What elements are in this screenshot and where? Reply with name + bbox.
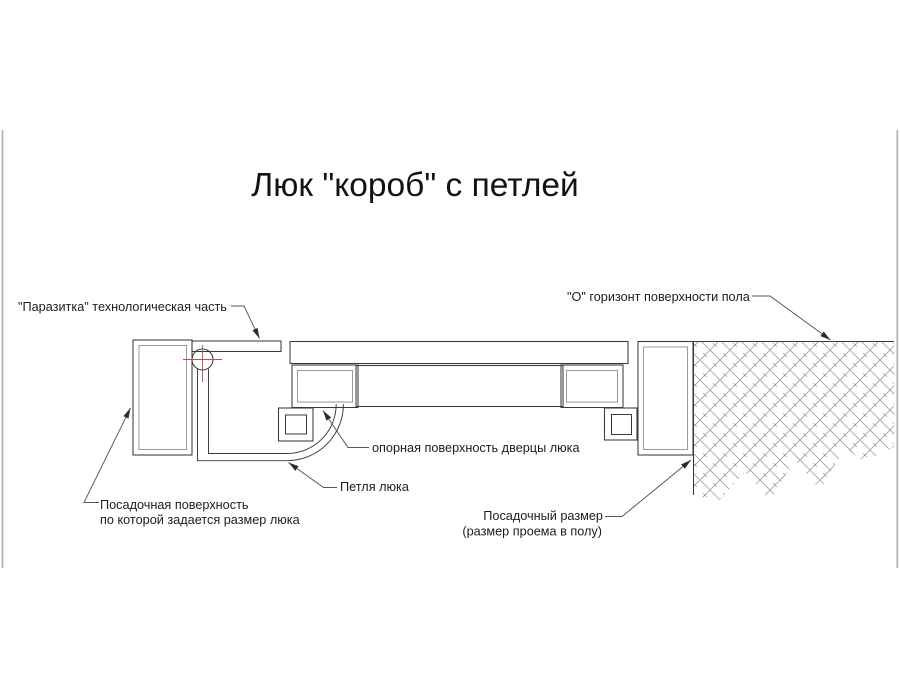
left-support-tube <box>279 408 314 441</box>
right-frame-profile <box>638 342 693 456</box>
floor-mass-hatch <box>694 342 895 501</box>
label-seat-surface-line1: Посадочная поверхность <box>100 498 249 512</box>
label-parasitka: "Паразитка" технологическая часть <box>18 300 227 314</box>
screenshot-root: Люк "короб" с петлей <box>0 0 900 700</box>
leader-seat-size <box>605 460 691 517</box>
label-hinge: Петля люка <box>340 480 410 494</box>
label-seat-size-line1: Посадочный размер <box>483 509 603 523</box>
hinge-axis-crosshair <box>183 345 222 382</box>
leader-floor-horizon <box>752 296 831 340</box>
leader-parasitka <box>231 306 260 339</box>
label-seat-surface-line2: по которой задается размер люка <box>100 513 301 527</box>
floor-mass <box>694 342 895 501</box>
door-left-filler <box>292 365 358 408</box>
label-seat-size-line2: (размер проема в полу) <box>462 525 602 539</box>
leader-hinge <box>289 463 338 488</box>
door-panel <box>356 366 563 407</box>
door-tile-slab <box>290 342 628 364</box>
technical-drawing: Люк "короб" с петлей <box>0 0 900 700</box>
left-frame-profile <box>133 340 192 455</box>
label-door-support-surface: опорная поверхность дверцы люка <box>372 441 580 455</box>
label-floor-horizon: "О" горизонт поверхности пола <box>567 290 751 304</box>
page-title: Люк "короб" с петлей <box>251 167 579 204</box>
right-support-tube <box>605 408 638 440</box>
hinge-pivot <box>183 345 222 382</box>
door-right-filler <box>561 365 623 408</box>
leader-seat-surface <box>84 408 131 503</box>
hatch-door <box>290 342 628 408</box>
